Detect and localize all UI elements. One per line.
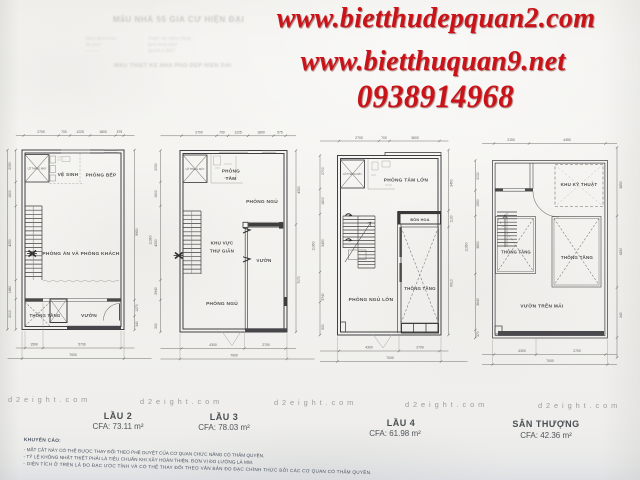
svg-text:2050: 2050	[154, 163, 158, 171]
svg-text:4250: 4250	[619, 248, 623, 256]
svg-text:330: 330	[154, 323, 158, 329]
svg-text:4450: 4450	[563, 138, 571, 142]
svg-text:2700: 2700	[573, 349, 581, 353]
svg-text:340: 340	[619, 312, 623, 318]
svg-text:VƯỜN: VƯỜN	[256, 256, 272, 263]
svg-text:VƯỜN TRÊN MÁI: VƯỜN TRÊN MÁI	[520, 302, 564, 310]
svg-text:BỒN HOA: BỒN HOA	[410, 217, 429, 222]
svg-text:7070: 7070	[297, 276, 301, 284]
svg-text:3600: 3600	[411, 136, 419, 140]
svg-text:1460: 1460	[8, 286, 12, 294]
svg-text:1800: 1800	[99, 130, 107, 134]
svg-text:PHÒNG NGỦ LỚN: PHÒNG NGỦ LỚN	[349, 295, 394, 303]
svg-text:11360: 11360	[312, 241, 316, 250]
svg-text:2700: 2700	[355, 136, 363, 140]
svg-text:1130: 1130	[449, 215, 453, 222]
svg-text:2700: 2700	[195, 131, 203, 135]
svg-text:PHÒNG NGỦ: PHÒNG NGỦ	[206, 299, 238, 307]
svg-text:7000: 7000	[230, 354, 238, 358]
svg-text:PHÒNG BẾP: PHÒNG BẾP	[86, 171, 117, 178]
svg-text:3450: 3450	[321, 239, 325, 247]
svg-text:1800: 1800	[257, 131, 265, 135]
svg-text:530: 530	[321, 324, 325, 330]
svg-text:PHÒNG TẮM LỚN: PHÒNG TẮM LỚN	[384, 176, 429, 184]
svg-text:PHÒNG NGỦ: PHÒNG NGỦ	[246, 197, 278, 205]
svg-text:1800: 1800	[321, 197, 325, 205]
svg-text:2010: 2010	[8, 310, 12, 318]
svg-text:1225: 1225	[234, 131, 242, 135]
svg-text:2940: 2940	[154, 287, 158, 295]
svg-text:1600: 1600	[154, 190, 158, 198]
svg-text:3450: 3450	[449, 179, 453, 187]
svg-text:1550: 1550	[476, 199, 480, 207]
svg-text:KHU VỰC: KHU VỰC	[211, 241, 234, 246]
svg-text:4300: 4300	[518, 349, 526, 353]
svg-text:KHU KỸ THUẬT: KHU KỸ THUẬT	[561, 181, 598, 187]
svg-text:4250: 4250	[8, 239, 12, 247]
svg-text:1225: 1225	[76, 130, 84, 134]
svg-text:3850: 3850	[619, 181, 623, 189]
svg-text:2700: 2700	[37, 130, 45, 134]
svg-text:11360: 11360	[149, 235, 153, 244]
svg-text:4350: 4350	[297, 186, 301, 194]
svg-text:TẮM: TẮM	[226, 174, 237, 181]
svg-text:1270: 1270	[135, 304, 139, 312]
svg-text:4250: 4250	[154, 239, 158, 247]
svg-text:LỖ THANG MÁY: LỖ THANG MÁY	[186, 168, 205, 171]
svg-text:4300: 4300	[209, 343, 217, 347]
svg-text:2050: 2050	[8, 162, 12, 170]
svg-text:370: 370	[476, 331, 480, 337]
svg-text:PHÒNG: PHÒNG	[222, 167, 240, 174]
svg-text:700: 700	[61, 130, 67, 134]
svg-text:THÔNG TẦNG: THÔNG TẦNG	[404, 286, 436, 291]
svg-text:4300: 4300	[365, 346, 373, 350]
svg-text:340: 340	[135, 321, 139, 327]
svg-text:6910: 6910	[449, 279, 453, 287]
svg-text:2150: 2150	[507, 138, 515, 142]
svg-text:THƯ GIÃN: THƯ GIÃN	[210, 248, 234, 254]
svg-text:3850: 3850	[476, 241, 480, 249]
svg-text:2700: 2700	[262, 343, 270, 347]
svg-text:THÔNG TẦNG: THÔNG TẦNG	[501, 250, 531, 255]
svg-text:1600: 1600	[8, 190, 12, 198]
svg-text:THÔNG TẦNG: THÔNG TẦNG	[561, 253, 594, 260]
svg-text:9950: 9950	[135, 228, 139, 236]
svg-text:2030: 2030	[476, 172, 480, 180]
svg-text:2700: 2700	[321, 167, 325, 175]
svg-text:11360: 11360	[465, 242, 469, 251]
svg-text:VƯỜN: VƯỜN	[81, 311, 97, 319]
svg-text:1590: 1590	[30, 343, 38, 347]
svg-text:PHÒNG ĂN VÀ PHÒNG KHÁCH: PHÒNG ĂN VÀ PHÒNG KHÁCH	[42, 249, 119, 257]
svg-text:700: 700	[381, 136, 387, 140]
svg-text:7000: 7000	[386, 356, 394, 360]
svg-text:VỆ SINH: VỆ SINH	[58, 170, 79, 177]
svg-text:575: 575	[117, 130, 123, 134]
svg-text:3640: 3640	[476, 298, 480, 306]
svg-text:3740: 3740	[321, 293, 325, 301]
svg-text:LỖ THANG MÁY: LỖ THANG MÁY	[28, 168, 47, 171]
svg-text:7000: 7000	[546, 359, 554, 363]
svg-text:575: 575	[277, 131, 283, 135]
svg-text:2700: 2700	[416, 346, 424, 350]
svg-text:700: 700	[219, 131, 225, 135]
svg-text:LỖ THANG MÁY: LỖ THANG MÁY	[343, 173, 362, 176]
svg-text:5730: 5730	[78, 343, 86, 347]
svg-text:7000: 7000	[69, 353, 77, 357]
